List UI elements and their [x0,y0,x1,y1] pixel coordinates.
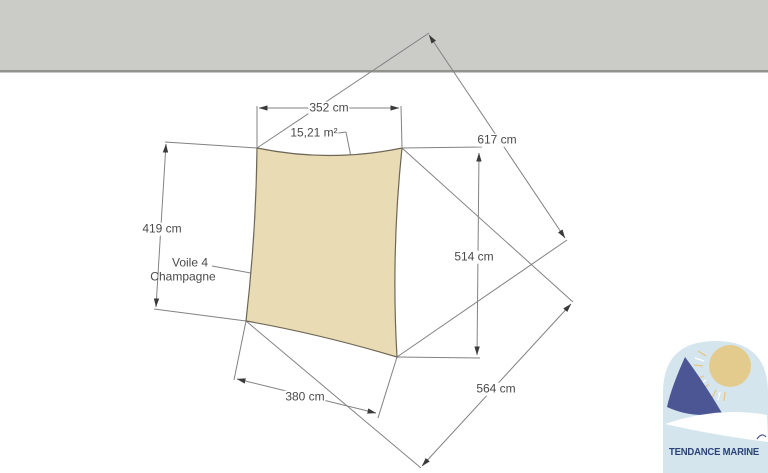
extension-line [397,357,480,358]
extension-line [234,321,246,380]
extension-line [402,147,482,148]
dim-label-left-edge: 419 cm [141,223,182,236]
sail-name-label-line2: Champagne [150,271,215,284]
sun-icon [709,345,751,387]
area-leader-line [338,132,346,133]
extension-line [154,309,246,321]
extension-line [401,106,402,147]
dim-label-right-edge: 514 cm [453,251,494,264]
wall-band [0,0,768,70]
extension-line [378,357,397,418]
wall-edge-line [0,70,768,73]
design-drawing-canvas: 352 cm 419 cm 514 cm 380 cm 617 cm 564 c… [0,0,768,473]
shade-sail-shape [246,148,402,357]
shade-sail-diagram [0,0,768,473]
dim-label-bottom-edge: 380 cm [284,391,325,404]
dim-label-diagonal-long: 617 cm [476,134,517,147]
dim-label-diagonal-short: 564 cm [475,383,516,396]
extension-line [402,148,573,302]
sail-name-label-line1: Voile 4 [172,257,208,270]
dim-label-top-edge: 352 cm [308,102,349,115]
brand-name: TENDANCE MARINE [662,447,767,458]
extension-line [165,142,257,148]
sail-area-label: 15,21 m² [289,127,338,140]
